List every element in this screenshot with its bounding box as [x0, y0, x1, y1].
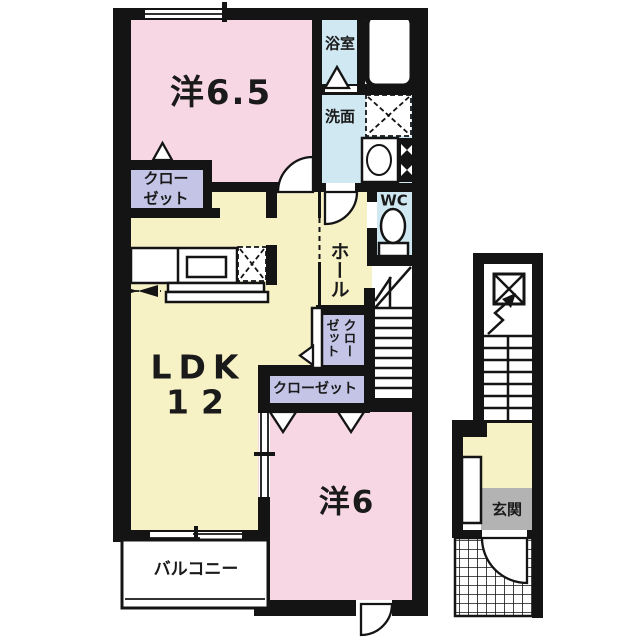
wall-segment [367, 255, 428, 266]
floor-plan-drawing [0, 0, 640, 640]
wall-segment [357, 8, 365, 92]
wall-segment [364, 398, 428, 412]
room-label-ldk: LDK [151, 351, 246, 384]
entry-landing-floor-upper [487, 423, 532, 439]
room-label-wc: WC [380, 194, 408, 209]
closet-hall-label-col1: クロー [342, 319, 355, 358]
wall-segment [364, 288, 375, 408]
room-label-ldk-size: 12 [166, 386, 236, 419]
toilet-icon [381, 209, 405, 243]
wall-segment [527, 530, 543, 538]
room-label-western-6-5: 洋6.5 [170, 76, 272, 110]
stove-icon [187, 257, 226, 277]
closet-nw-label-line1: クロー [143, 172, 188, 187]
room-label-entrance: 玄関 [492, 503, 522, 518]
wall-segment [266, 245, 277, 285]
washbasin-bowl [367, 145, 391, 175]
window-tick [254, 452, 275, 456]
wall-segment [266, 190, 277, 218]
window-tick [222, 2, 227, 22]
counter-front-strip [168, 283, 264, 292]
door-swing-western-6 [361, 604, 392, 635]
stair-winder-line [375, 267, 411, 308]
wall-segment [113, 208, 220, 218]
wall-segment [113, 8, 131, 542]
closet-hall-label-col2: ゼット [325, 319, 338, 358]
wall-segment [463, 420, 487, 437]
room-label-western-6: 洋6 [319, 488, 376, 519]
room-label-balcony: バルコニー [154, 562, 239, 579]
wall-segment [532, 253, 543, 618]
shoe-cabinet-icon [462, 457, 481, 523]
toilet-tank [379, 243, 408, 256]
wc-door-opening [367, 202, 377, 228]
bathtub-icon [367, 15, 412, 86]
wall-segment [113, 160, 212, 170]
wall-segment [412, 8, 428, 616]
floor-plan: 洋6.5 クロー ゼット 浴室 洗面 WC ホール クロー ゼット クローゼット… [0, 0, 640, 640]
closet-nw-label-line2: ゼット [143, 192, 188, 207]
wall-segment [254, 600, 428, 616]
room-label-hall: ホール [329, 242, 348, 299]
wall-segment [452, 530, 482, 538]
partition-line [318, 190, 321, 218]
room-label-bathroom: 浴室 [325, 37, 355, 52]
door-opening [326, 183, 355, 192]
staircase-to-2f-icon [375, 267, 412, 388]
wall-segment [484, 420, 532, 423]
counter-front-strip [166, 292, 268, 302]
partition-line [318, 262, 321, 307]
room-label-washroom: 洗面 [325, 110, 355, 125]
room-label-closet-south: クローゼット [273, 382, 357, 396]
wall-segment [473, 253, 484, 424]
entry-staircase-icon [484, 274, 532, 420]
door-opening [482, 530, 527, 538]
